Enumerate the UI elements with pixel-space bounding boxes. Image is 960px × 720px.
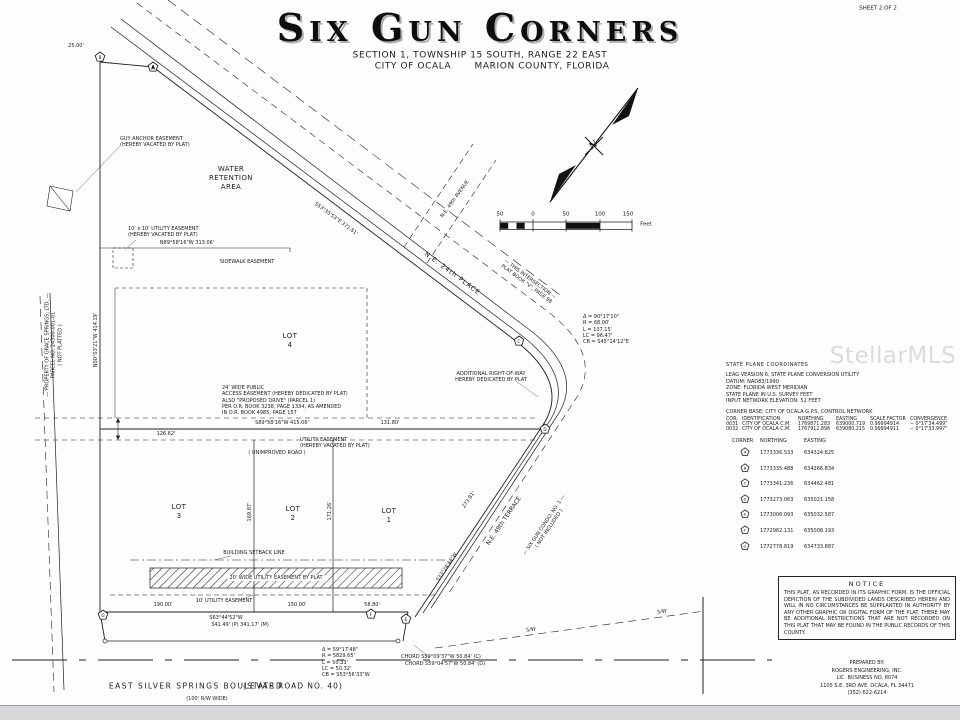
title-county: MARION COUNTY, FLORIDA [475, 62, 610, 73]
curve2-bearing: CB = S53°56'33"W [322, 672, 370, 678]
util-vac-line2: (HEREBY VACATED BY PLAT) [128, 232, 199, 238]
dim-west-boundary: N00°03'21"W 414.19' [93, 313, 99, 367]
svg-text:F: F [744, 529, 746, 533]
util-vac2-line2: (HEREBY VACATED BY PLAT) [300, 443, 370, 449]
utility-vacated-note: 10' x 10' UTILITY EASEMENT (HEREBY VACAT… [128, 226, 199, 239]
water-line1: WATER [205, 165, 257, 174]
state-plane-coordinates-panel: STATE PLANE COORDINATES LEAG VERSION 6, … [726, 362, 960, 553]
dim-lot-line-171: 171.26' [327, 502, 333, 521]
building-setback-label: BUILDING SETBACK LINE [223, 550, 285, 556]
corner-c-northing: 1773341.236 [760, 481, 804, 487]
pentagon-marker-icon: F [740, 525, 750, 535]
svg-text:D: D [744, 498, 747, 502]
utility-vacated-note-2: UTILITY EASEMENT (HEREBY VACATED BY PLAT… [300, 437, 370, 450]
corner-letter-g: G [101, 613, 104, 618]
svg-text:E: E [744, 513, 747, 517]
access-easement-note: 24' WIDE PUBLIC ACCESS EASEMENT (HEREBY … [222, 385, 348, 416]
corner-h-northing: NORTHING [760, 438, 804, 444]
notice-box: NOTICE THIS PLAT, AS RECORDED IN ITS GRA… [778, 576, 956, 640]
plat-sheet: B A C D E F G SHEET 2 OF 2 S [0, 0, 960, 720]
grace-line3: ( NOT PLATTED ) [57, 293, 63, 396]
corner-g-easting: 634733.887 [804, 544, 960, 550]
corner-a-easting: 634324.825 [804, 450, 960, 456]
dim-126: 126.62' [157, 431, 176, 437]
pentagon-marker-icon: C [740, 478, 750, 488]
panel-corner-base: CORNER BASE: CITY OF OCALA G.P.S. CONTRO… [726, 409, 960, 415]
scale-tick-1: 0 [531, 212, 535, 219]
guy-anchor-line2: (HEREBY VACATED BY PLAT) [120, 142, 190, 148]
pentagon-marker-icon: G [740, 541, 750, 551]
state-road-40-label: (STATE ROAD NO. 40) [243, 682, 343, 691]
prepared-by-block: PREPARED BY: ROGERS ENGINEERING, INC. LI… [792, 660, 942, 698]
gps-r2-cor: 0032 [726, 427, 742, 432]
corner-h-corner: CORNER [726, 438, 760, 444]
corner-table-header: CORNER NORTHING EASTING [726, 438, 960, 444]
dim-south-bearing: S63°44'52"W [209, 615, 242, 621]
corner-c-easting: 634462.481 [804, 481, 960, 487]
notice-body: THIS PLAT, AS RECORDED IN ITS GRAPHIC FO… [784, 590, 950, 636]
dim-north-313: N89°58'16"W 313.06' [160, 240, 214, 246]
pentagon-marker-icon: B [740, 463, 750, 473]
water-line3: AREA [205, 183, 257, 192]
guy-anchor-easement-note: GUY ANCHOR EASEMENT (HEREBY VACATED BY P… [120, 136, 190, 149]
corner-f-northing: 1772982.131 [760, 528, 804, 534]
corner-letter-a: A [152, 65, 155, 70]
utility-easement-10-label: 10' UTILITY EASEMENT [196, 598, 253, 604]
prepared-by-label: PREPARED BY: [792, 660, 942, 668]
page-title: Six Gun Corners [277, 5, 684, 51]
corner-row-a: A 1773336.533 634324.825 [726, 447, 960, 459]
corner-e-easting: 635032.587 [804, 512, 960, 518]
sheet-number: SHEET 2 OF 2 [859, 6, 897, 13]
dim-25: 25.00' [68, 43, 84, 49]
svg-text:C: C [744, 482, 747, 486]
scale-bar [500, 220, 632, 232]
unimproved-road-label: ( UNIMPROVED ROAD ) [248, 450, 305, 456]
bottom-scan-edge [0, 705, 960, 720]
gps-r2-easting: 639080.215 [836, 427, 870, 432]
title-city: CITY OF OCALA [375, 62, 452, 73]
lot1-number: 1 [378, 516, 400, 525]
prepared-by-firm: ROGERS ENGINEERING, INC. [792, 668, 942, 676]
corner-row-f: F 1772982.131 635008.193 [726, 525, 960, 537]
hatch-easement-label: 20' WIDE UTILITY EASEMENT BY PLAT [227, 575, 324, 581]
corner-b-northing: 1773335.488 [760, 466, 804, 472]
stellar-mls-watermark: StellarMLS [830, 343, 956, 371]
dim-190: 190.00' [154, 602, 173, 608]
scale-tick-2: 50 [563, 212, 570, 219]
notice-title: NOTICE [784, 580, 950, 588]
prepared-by-phone: (352) 622-6214 [792, 690, 942, 698]
corner-d-easting: 635021.158 [804, 497, 960, 503]
lot3-number: 3 [168, 512, 190, 521]
lot2-word: LOT [282, 505, 304, 514]
title-subtitle-line1: SECTION 1, TOWNSHIP 15 SOUTH, RANGE 22 E… [353, 51, 608, 62]
curve-data-2: Δ = 59°17'48" R = 5829.65' L = 50.33' LC… [322, 647, 370, 678]
prepared-by-address: 1105 S.E. 3RD AVE. OCALA, FL 34471 [792, 683, 942, 691]
grace-springs-property-note: — PROPERTY OF GRACE SPRINGS, LTD. — PARC… [45, 293, 64, 396]
gps-r2-northing: 1767912.898 [798, 427, 836, 432]
gps-r2-convergence: − 0°17'33.997" [910, 427, 958, 432]
access-note-line5: IN O.R. BOOK 4985, PAGE 157 [222, 410, 348, 416]
scale-tick-4: 150 [623, 212, 634, 219]
corner-row-e: E 1773006.093 635032.587 [726, 509, 960, 521]
water-retention-area-label: WATER RETENTION AREA [205, 165, 257, 191]
corner-letter-c: C [518, 339, 521, 344]
lot-4-label: LOT 4 [279, 332, 301, 350]
corner-letter-d: D [543, 427, 546, 432]
dim-mid-415: S89°58'16"W 415.06' [255, 420, 309, 426]
svg-text:G: G [744, 544, 747, 548]
scale-unit: Feet [640, 222, 652, 229]
curve1-bearing: CB = S45°14'12"E [583, 339, 629, 345]
rw-width-label: (100' R/W WIDE) [186, 696, 228, 702]
access-note-line2: ACCESS EASEMENT (HEREBY DEDICATED BY PLA… [222, 391, 348, 397]
dim-131: 131.80' [381, 420, 400, 426]
pentagon-marker-icon: E [740, 509, 750, 519]
corner-d-northing: 1773273.063 [760, 497, 804, 503]
chord-note-c: CHORD S59°09'37"W 50.84' (C) [401, 654, 481, 660]
lot2-number: 2 [282, 514, 304, 523]
additional-rw-note: ADDITIONAL RIGHT-OF-WAY HEREBY DEDICATED… [455, 371, 527, 384]
sidewalk-easement-label: SIDEWALK EASEMENT [220, 259, 275, 265]
corner-row-b: B 1773335.488 634266.834 [726, 463, 960, 475]
dim-lot-line-169: 169.87' [247, 503, 253, 522]
svg-text:B: B [744, 466, 747, 470]
svg-text:A: A [744, 451, 747, 455]
prepared-by-license: LIC. BUSINESS NO. 8074 [792, 675, 942, 683]
lot-2-label: LOT 2 [282, 505, 304, 523]
dim-south-length: 341.49' (P) 341.17' (M) [211, 622, 269, 628]
water-line2: RETENTION [205, 174, 257, 183]
corner-row-g: G 1772778.819 634733.887 [726, 541, 960, 553]
lot1-word: LOT [378, 507, 400, 516]
dim-150: 150.00' [288, 602, 307, 608]
plat-boundary [100, 62, 552, 641]
pentagon-marker-icon: A [740, 447, 750, 457]
corner-f-easting: 635008.193 [804, 528, 960, 534]
lot4-number: 4 [279, 341, 301, 350]
gps-r2-ident: CITY OF OCALA C.M. [742, 427, 798, 432]
corner-a-northing: 1773336.533 [760, 450, 804, 456]
dim-58: 58.80' [364, 602, 380, 608]
corner-letter-e: E [405, 617, 408, 622]
corner-h-easting: EASTING [804, 438, 960, 444]
lot-1-label: LOT 1 [378, 507, 400, 525]
panel-info-5: INPUT NETWORK ELEVATION: 52 FEET [726, 398, 960, 405]
corner-e-northing: 1773006.093 [760, 512, 804, 518]
lot-3-label: LOT 3 [168, 503, 190, 521]
curve-data-1: Δ = 90°17'10" R = 68.00' L = 107.15' LC … [583, 314, 629, 345]
pentagon-marker-icon: D [740, 494, 750, 504]
gps-r2-scale: 0.99994911 [870, 427, 910, 432]
scale-tick-3: 100 [595, 212, 606, 219]
chord-note-d: CHORD S59°04'57"W 50.84' (D) [405, 661, 485, 667]
corner-b-easting: 634266.834 [804, 466, 960, 472]
lot3-word: LOT [168, 503, 190, 512]
corner-row-c: C 1773341.236 634462.481 [726, 478, 960, 490]
corner-row-d: D 1773273.063 635021.158 [726, 494, 960, 506]
lot4-word: LOT [279, 332, 301, 341]
addl-rw-line2: HEREBY DEDICATED BY PLAT [455, 377, 527, 383]
corner-letter-b: B [99, 55, 102, 60]
scale-tick-0: 50 [497, 212, 504, 219]
gps-grid-row-2: 0032 CITY OF OCALA C.M. 1767912.898 6390… [726, 427, 960, 432]
corner-g-northing: 1772778.819 [760, 544, 804, 550]
